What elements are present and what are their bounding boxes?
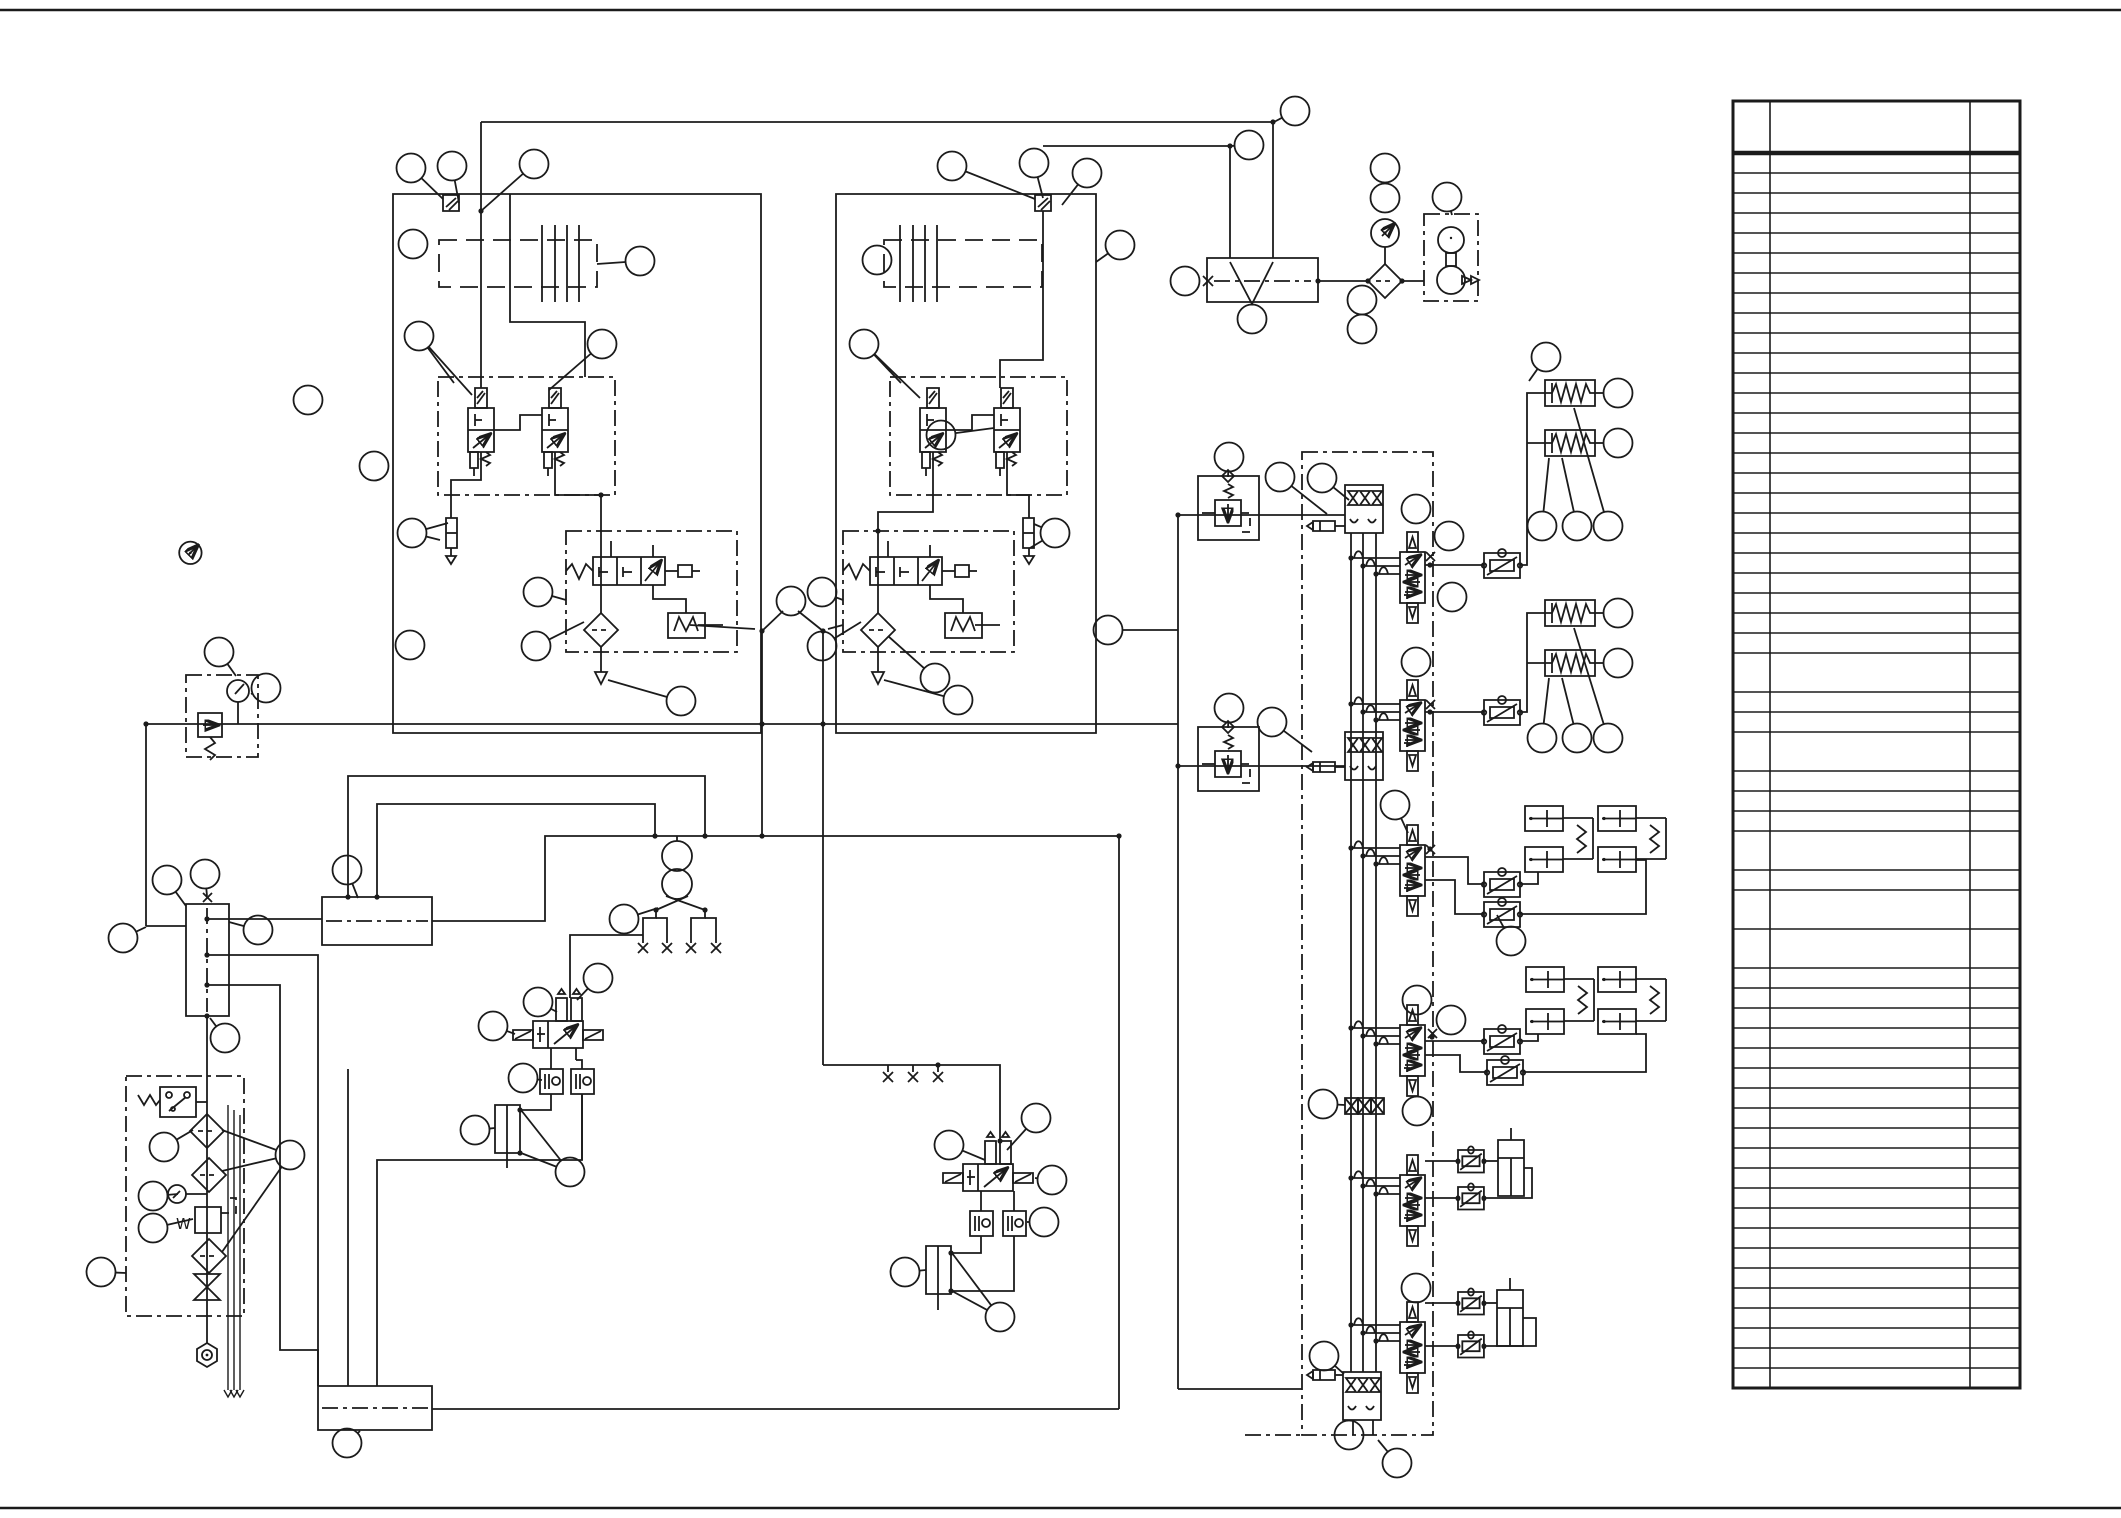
junction-dot bbox=[1348, 1175, 1353, 1180]
callout-balloon bbox=[1215, 443, 1244, 472]
junction-dot bbox=[1427, 846, 1432, 851]
callout-leader bbox=[229, 922, 244, 926]
callout-leader bbox=[1007, 1129, 1026, 1150]
parts-table-border bbox=[1733, 101, 2020, 1388]
callout-balloon bbox=[667, 687, 696, 716]
return-manifold-lower bbox=[318, 1386, 432, 1430]
callout-balloon bbox=[850, 330, 879, 359]
callout-balloon bbox=[1348, 286, 1377, 315]
callout-balloon bbox=[333, 1429, 362, 1458]
callout-balloon bbox=[556, 1158, 585, 1187]
junction-dot bbox=[517, 1107, 522, 1112]
callout-leader bbox=[834, 622, 861, 638]
callout-balloon bbox=[438, 152, 467, 181]
junction-dot bbox=[1175, 512, 1180, 517]
parts-table bbox=[1733, 101, 2020, 1388]
callout-leader bbox=[210, 1018, 216, 1026]
check-valve-block bbox=[540, 1069, 594, 1094]
callout-balloon bbox=[1438, 583, 1467, 612]
water-separator-label: W bbox=[176, 1215, 191, 1233]
callout-balloon bbox=[1403, 1097, 1432, 1126]
callout-leader bbox=[176, 892, 186, 906]
callout-balloon bbox=[1563, 512, 1592, 541]
callout-balloon bbox=[397, 154, 426, 183]
callout-leader bbox=[421, 178, 443, 199]
engine-block bbox=[884, 240, 1042, 287]
callout-leader bbox=[952, 1253, 991, 1305]
pump-unit-filters: W bbox=[126, 1076, 244, 1397]
callout-leader bbox=[1378, 1440, 1388, 1452]
callout-balloon bbox=[1281, 97, 1310, 126]
callout-balloon bbox=[1020, 149, 1049, 178]
junction-dot bbox=[1360, 1330, 1365, 1335]
callout-leader bbox=[884, 680, 944, 696]
callout-leader bbox=[429, 347, 472, 395]
junction-dot bbox=[702, 833, 707, 838]
check-valve-block bbox=[970, 1211, 1026, 1236]
callout-balloon bbox=[1435, 522, 1464, 551]
callout-balloon bbox=[1604, 649, 1633, 678]
callout-balloon bbox=[1402, 1274, 1431, 1303]
callout-balloon bbox=[252, 674, 281, 703]
junction-dot bbox=[1348, 1025, 1353, 1030]
callout-balloon bbox=[1594, 724, 1623, 753]
junction-dot bbox=[759, 833, 764, 838]
callout-balloon bbox=[1348, 315, 1377, 344]
callout-leader bbox=[177, 1130, 193, 1140]
junction-dot bbox=[652, 833, 657, 838]
callout-leader bbox=[1034, 524, 1042, 527]
callout-balloon bbox=[777, 587, 806, 616]
solenoid-valve-assembly-1 bbox=[495, 989, 603, 1168]
callout-leader bbox=[222, 1167, 282, 1252]
callout-leader bbox=[1543, 458, 1549, 512]
callout-leader bbox=[874, 355, 901, 383]
callout-balloon bbox=[1433, 183, 1462, 212]
callout-leader bbox=[521, 1110, 561, 1161]
callout-leader bbox=[222, 1158, 276, 1171]
callout-balloon bbox=[399, 230, 428, 259]
pilot-gauge-box bbox=[179, 542, 258, 760]
callout-leader bbox=[1096, 253, 1108, 262]
callout-balloon bbox=[1308, 464, 1337, 493]
callout-balloon bbox=[986, 1303, 1015, 1332]
callout-balloon bbox=[360, 452, 389, 481]
callout-balloon bbox=[938, 152, 967, 181]
control-valve-bank bbox=[1245, 380, 1666, 1435]
callout-balloon bbox=[87, 1258, 116, 1287]
callout-balloon bbox=[944, 686, 973, 715]
junction-dot bbox=[935, 1062, 940, 1067]
callout-leader bbox=[962, 1151, 985, 1160]
return-manifold-upper bbox=[322, 897, 432, 945]
callout-leader bbox=[426, 523, 448, 529]
callout-balloon bbox=[935, 1131, 964, 1160]
engine-block bbox=[439, 240, 597, 287]
callout-leader bbox=[222, 1130, 276, 1150]
spool-section-2 bbox=[1351, 600, 1604, 771]
callout-balloon bbox=[1094, 616, 1123, 645]
callout-balloon bbox=[479, 1012, 508, 1041]
callout-balloon bbox=[405, 322, 434, 351]
callout-leaders bbox=[115, 118, 1603, 1452]
callout-balloon bbox=[509, 1064, 538, 1093]
spool-section-5 bbox=[1351, 1128, 1532, 1246]
callout-leader bbox=[1333, 487, 1349, 500]
junction-dot bbox=[517, 1150, 522, 1155]
junction-dot bbox=[1373, 1191, 1378, 1196]
junction-dot bbox=[1270, 119, 1275, 124]
callout-balloon bbox=[522, 632, 551, 661]
callout-leader bbox=[1030, 540, 1043, 548]
callout-balloon bbox=[294, 386, 323, 415]
junction-dot bbox=[1116, 833, 1121, 838]
callout-balloon bbox=[1171, 267, 1200, 296]
callout-balloon bbox=[191, 860, 220, 889]
accumulator-cylinder bbox=[926, 1246, 951, 1310]
callout-balloon bbox=[139, 1182, 168, 1211]
junction-dot bbox=[204, 1013, 209, 1018]
junction-dot bbox=[1360, 563, 1365, 568]
callout-leader bbox=[481, 174, 523, 211]
junction-dot bbox=[759, 628, 764, 633]
callout-balloon bbox=[1371, 154, 1400, 183]
schematic-page: W bbox=[0, 0, 2121, 1518]
callout-balloon bbox=[808, 632, 837, 661]
junction-dot bbox=[1315, 278, 1320, 283]
callout-balloon bbox=[1258, 708, 1287, 737]
callout-leader bbox=[1284, 731, 1312, 752]
callout-balloon bbox=[808, 578, 837, 607]
callout-balloon bbox=[153, 866, 182, 895]
junction-dot bbox=[653, 907, 658, 912]
pilot-valve-subbox bbox=[438, 377, 615, 495]
callout-balloon bbox=[398, 519, 427, 548]
callout-leader bbox=[426, 537, 440, 540]
junction-dot bbox=[997, 1138, 1002, 1143]
callout-balloon bbox=[1594, 512, 1623, 541]
hand-pump-couplers bbox=[570, 836, 721, 998]
callout-balloon bbox=[921, 664, 950, 693]
callout-balloon bbox=[1497, 927, 1526, 956]
callout-balloon bbox=[1266, 463, 1295, 492]
callout-balloon bbox=[1310, 1342, 1339, 1371]
main-lines bbox=[146, 515, 1302, 1409]
callout-balloon bbox=[584, 964, 613, 993]
callout-leader bbox=[874, 354, 920, 398]
callout-balloon bbox=[524, 578, 553, 607]
callout-balloon bbox=[1022, 1104, 1051, 1133]
callout-balloon bbox=[1371, 184, 1400, 213]
callout-balloon bbox=[1528, 512, 1557, 541]
callout-balloon bbox=[396, 631, 425, 660]
junction-dot bbox=[1360, 853, 1365, 858]
callout-balloon bbox=[1381, 791, 1410, 820]
callout-leader bbox=[167, 1194, 178, 1195]
junction-dot bbox=[204, 916, 209, 921]
callout-leader bbox=[1291, 486, 1327, 514]
junction-dot bbox=[1348, 1322, 1353, 1327]
junction-dot bbox=[345, 894, 350, 899]
callout-balloon bbox=[1041, 519, 1070, 548]
hydraulic-schematic: W bbox=[0, 0, 2121, 1518]
junction-dot bbox=[1175, 763, 1180, 768]
pump-bypass-junction bbox=[690, 611, 843, 1065]
callout-balloon bbox=[1383, 1449, 1412, 1478]
callout-leader bbox=[608, 680, 667, 697]
gear-manifold bbox=[1207, 258, 1318, 302]
callout-leader bbox=[206, 888, 207, 896]
fan-gear-circuit bbox=[481, 122, 1479, 388]
callout-balloon bbox=[139, 1214, 168, 1243]
junction-dot bbox=[875, 528, 880, 533]
junction-dot bbox=[948, 1288, 953, 1293]
callout-balloon bbox=[1030, 1208, 1059, 1237]
junction-dot bbox=[1360, 1033, 1365, 1038]
callout-balloon bbox=[1238, 305, 1267, 334]
junction-dot bbox=[1365, 278, 1370, 283]
junction-dot bbox=[1427, 562, 1432, 567]
callout-balloon bbox=[150, 1133, 179, 1162]
callout-leader bbox=[1562, 678, 1573, 724]
junction-dot bbox=[598, 492, 603, 497]
callout-balloon bbox=[1563, 724, 1592, 753]
callout-balloon bbox=[1235, 131, 1264, 160]
callout-balloon bbox=[1604, 379, 1633, 408]
callout-balloon bbox=[1402, 495, 1431, 524]
pump-assembly-1 bbox=[393, 194, 761, 733]
accumulator-cylinder bbox=[495, 1105, 520, 1168]
callout-balloon bbox=[1402, 648, 1431, 677]
callout-leader bbox=[1544, 678, 1549, 724]
junction-dot bbox=[1373, 1041, 1378, 1046]
junction-dot bbox=[1373, 1338, 1378, 1343]
callout-leader bbox=[597, 262, 626, 264]
callout-leader bbox=[919, 1270, 926, 1271]
callout-leader bbox=[1335, 1366, 1344, 1374]
junction-dot bbox=[1373, 571, 1378, 576]
junction-dot bbox=[1348, 845, 1353, 850]
spool-section-6 bbox=[1351, 1278, 1536, 1393]
junction-dot bbox=[1348, 701, 1353, 706]
callout-leader bbox=[352, 883, 358, 898]
callout-balloon bbox=[1437, 1006, 1466, 1035]
callout-leader bbox=[1562, 458, 1574, 512]
junction-dot bbox=[1399, 278, 1404, 283]
junction-dot bbox=[204, 952, 209, 957]
junction-dot bbox=[374, 894, 379, 899]
junction-dots bbox=[143, 119, 1434, 1343]
callout-balloon bbox=[610, 905, 639, 934]
callout-balloon bbox=[863, 246, 892, 275]
junction-dot bbox=[478, 208, 483, 213]
junction-dot bbox=[204, 982, 209, 987]
junction-dot bbox=[702, 907, 707, 912]
junction-dot bbox=[820, 628, 825, 633]
callout-balloon bbox=[1604, 429, 1633, 458]
spool-section-1 bbox=[1351, 380, 1604, 623]
junction-dot bbox=[143, 721, 148, 726]
callout-leader bbox=[552, 596, 566, 600]
junction-dot bbox=[1348, 555, 1353, 560]
callout-balloon bbox=[524, 988, 553, 1017]
junction-dot bbox=[1360, 1183, 1365, 1188]
junction-dot bbox=[1360, 709, 1365, 714]
junction-dot bbox=[1429, 1034, 1434, 1039]
junction-dot bbox=[1427, 709, 1432, 714]
solenoid-valve-assembly-2 bbox=[823, 1065, 1033, 1310]
callout-balloon bbox=[109, 924, 138, 953]
junction-dot bbox=[1373, 861, 1378, 866]
junction-dot bbox=[820, 721, 825, 726]
callout-balloon bbox=[1532, 343, 1561, 372]
callout-balloon bbox=[1073, 159, 1102, 188]
callout-balloon bbox=[1038, 1166, 1067, 1195]
callout-balloon bbox=[1309, 1090, 1338, 1119]
callout-leader bbox=[136, 927, 146, 932]
spool-section-3 bbox=[1351, 806, 1666, 927]
callout-leader bbox=[1529, 369, 1538, 381]
callout-balloon bbox=[461, 1116, 490, 1145]
callout-balloon bbox=[891, 1258, 920, 1287]
callout-balloon bbox=[588, 330, 617, 359]
quick-coupler-marks bbox=[883, 1072, 943, 1082]
callout-balloon bbox=[520, 150, 549, 179]
callout-leader bbox=[1574, 408, 1604, 512]
callout-balloon bbox=[626, 247, 655, 276]
junction-dot bbox=[1373, 717, 1378, 722]
quick-coupler-marks bbox=[638, 943, 721, 953]
callout-balloon bbox=[1215, 694, 1244, 723]
junction-dot bbox=[948, 1250, 953, 1255]
junction-dot bbox=[1227, 143, 1232, 148]
callout-balloon bbox=[1604, 599, 1633, 628]
junction-dot bbox=[759, 721, 764, 726]
spool-section-4 bbox=[1351, 967, 1666, 1096]
callout-balloon bbox=[211, 1024, 240, 1053]
callout-balloon bbox=[1403, 986, 1432, 1015]
callout-balloon bbox=[1106, 231, 1135, 260]
callout-balloon bbox=[333, 856, 362, 885]
callout-balloon bbox=[205, 638, 234, 667]
callout-balloon bbox=[1528, 724, 1557, 753]
